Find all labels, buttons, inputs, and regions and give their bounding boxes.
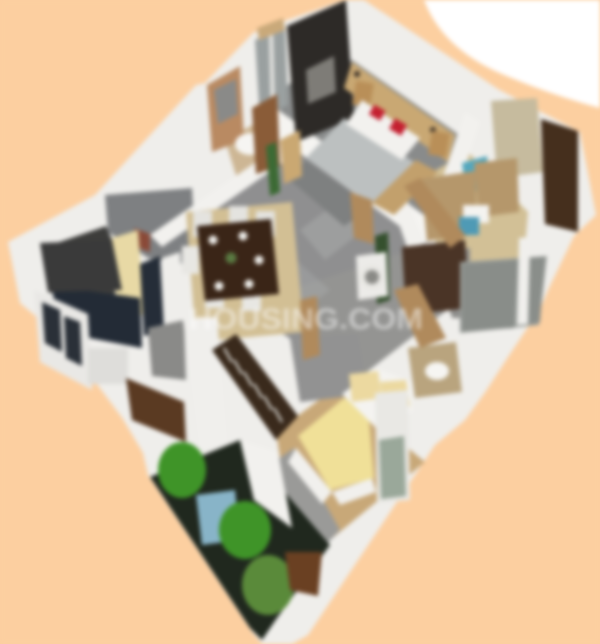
svg-text:HOUSING.COM: HOUSING.COM bbox=[189, 303, 423, 336]
